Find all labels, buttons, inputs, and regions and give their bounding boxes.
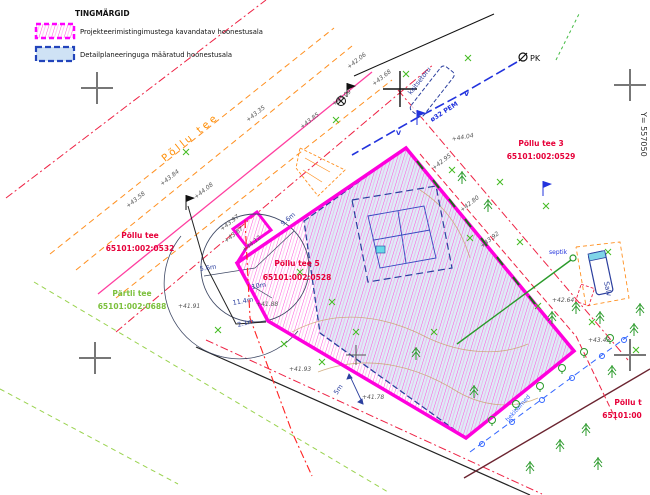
tree-icon xyxy=(484,199,492,212)
elevation-label: +41.88 xyxy=(256,301,278,308)
elevation-label: +42.64 xyxy=(552,297,574,304)
tree-icon xyxy=(458,171,466,184)
tree-icon xyxy=(556,439,564,452)
parcel-name-label: Pärtli tee xyxy=(112,289,151,298)
fence-line-north xyxy=(354,14,494,76)
radius-dim-label: 11.4m xyxy=(232,295,254,306)
elevation-label: +43.09 xyxy=(331,88,353,107)
elevation-label: +44.04 xyxy=(451,132,474,143)
radius-dim-label: 5.6m xyxy=(199,263,217,273)
elevation-label: +43.84 xyxy=(159,168,181,187)
elevation-label: +42.95 xyxy=(431,152,453,171)
legend-item-label: Detailplaneeringuga määratud hoonestusal… xyxy=(80,51,232,59)
legend-item-label: Projekteerimistingimustega kavandatav ho… xyxy=(80,28,263,36)
site-plan-canvas: Põllu tee Põllu tee 65101:002:0532 Pärtl… xyxy=(0,0,650,495)
driveway-outline xyxy=(296,148,345,196)
driveway-hatch xyxy=(303,158,330,182)
elevation-label: +43.68 xyxy=(371,68,393,87)
offset-dimension xyxy=(347,374,363,404)
site-plan-drawing: Põllu tee Põllu tee 65101:002:0532 Pärtl… xyxy=(0,0,650,495)
water-pipe-group xyxy=(352,53,527,155)
legend-swatch-magenta-hatch xyxy=(36,24,74,38)
x-mark-icon xyxy=(319,359,325,365)
pk-label: PK xyxy=(530,54,541,63)
x-mark-icon xyxy=(497,179,503,185)
parcel-name-label: Põllu t xyxy=(614,398,642,407)
parcel-cadastre-label: 65101:002:0529 xyxy=(507,152,576,161)
elevation-label: +43.43 xyxy=(588,337,610,344)
well-label: Salv xyxy=(602,281,613,297)
septic-label: septik xyxy=(549,249,568,256)
x-mark-icon xyxy=(589,319,595,325)
elevation-label: +41.91 xyxy=(178,303,200,310)
parcel-cadastre-label: 65101:002:0532 xyxy=(106,244,175,253)
pipe-label: ø32 PEM xyxy=(429,100,460,124)
elevation-label: +41.78 xyxy=(362,394,384,401)
tree-icon xyxy=(608,365,616,378)
tree-icon xyxy=(582,423,590,436)
parcel-name-label: Põllu tee xyxy=(121,231,159,240)
crosshair-mark xyxy=(614,69,646,101)
offset-dim-label: 5m xyxy=(332,383,345,396)
elevation-label: +41.93 xyxy=(289,366,311,373)
green-boundary-line xyxy=(0,389,178,484)
x-mark-icon xyxy=(517,239,523,245)
x-mark-icon xyxy=(465,55,471,61)
elevation-label: +43.58 xyxy=(125,190,147,209)
crosshair-mark xyxy=(614,339,646,371)
legend-swatch-blue-dashed xyxy=(36,47,74,61)
tree-icon xyxy=(594,457,602,470)
crosshair-mark xyxy=(81,72,113,104)
x-mark-icon xyxy=(333,117,339,123)
tree-icon xyxy=(526,461,534,474)
elevation-label: +42.06 xyxy=(346,51,368,70)
elevation-label: +43.35 xyxy=(245,104,267,123)
legend-title: TINGMÄRGID xyxy=(75,9,130,18)
tree-icon xyxy=(596,311,604,324)
legend: TINGMÄRGID Projekteerimistingimustega ka… xyxy=(36,9,263,61)
crosshair-mark xyxy=(79,342,111,374)
planned-building-area-hatch xyxy=(237,148,574,438)
pipe-v-marker: V xyxy=(396,129,401,137)
pipe-v-marker: V xyxy=(464,90,469,98)
x-mark-icon xyxy=(633,347,639,353)
x-mark-icon xyxy=(543,203,549,209)
septic-point xyxy=(570,255,576,261)
tree-icon xyxy=(636,303,644,316)
x-mark-icon xyxy=(403,71,409,77)
y-coordinate-label: Y= 557050 xyxy=(639,111,648,157)
green-line-north xyxy=(556,12,580,60)
radius-dim-label: 2.1m xyxy=(237,317,255,329)
parcel-cadastre-label: 65101:00 xyxy=(602,411,642,420)
parcel-name-label: Põllu tee 5 xyxy=(274,259,319,268)
flag-icon-blue xyxy=(543,181,552,196)
parcel-name-label: Põllu tee 3 xyxy=(518,139,563,148)
building-detail-rect xyxy=(376,246,385,253)
x-mark-icon xyxy=(281,341,287,347)
road-name-label: Põllu tee xyxy=(160,112,221,165)
parcel-cadastre-label: 65101:002:0688 xyxy=(98,302,167,311)
x-mark-icon xyxy=(449,167,455,173)
parcel-cadastre-label: 65101:002:0528 xyxy=(263,273,332,282)
elevation-label: +44.08 xyxy=(193,181,215,200)
tree-icon xyxy=(630,323,638,336)
elevation-label: +43.85 xyxy=(299,111,321,130)
x-mark-icon xyxy=(215,327,221,333)
